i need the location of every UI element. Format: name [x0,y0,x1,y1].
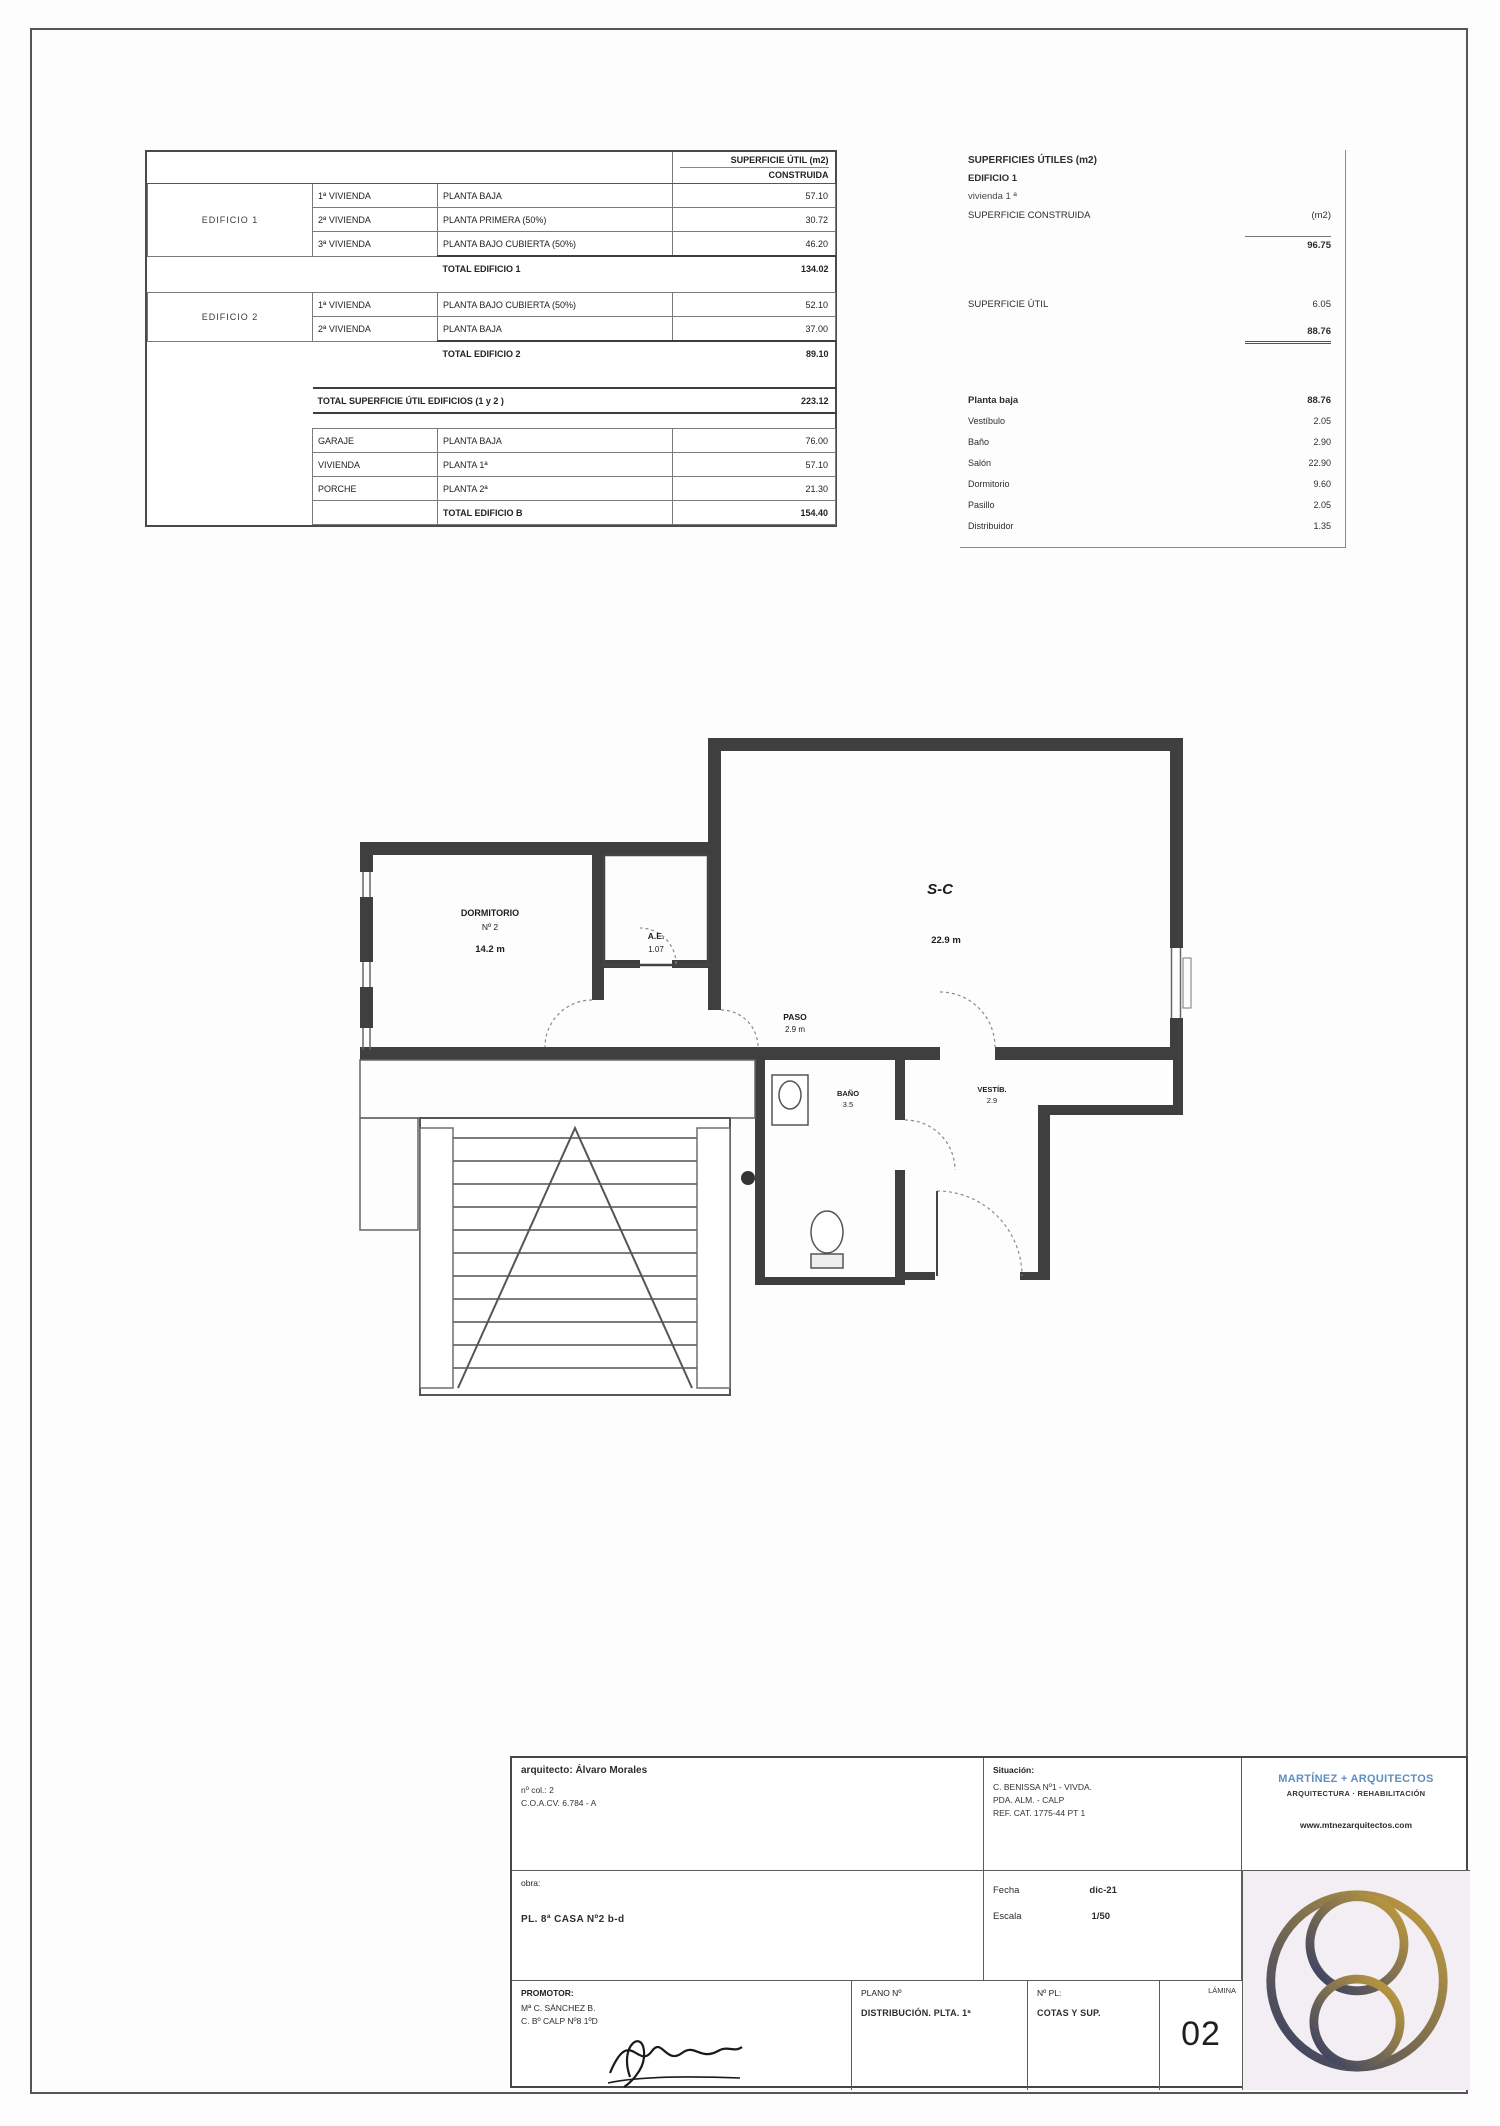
constructed-value: 96.75 [1245,236,1331,255]
room-row: Baño 2.90 [968,432,1331,453]
window-lines [363,872,1181,1050]
unit-cell: 3ª VIVIENDA [313,232,438,257]
useful-total: 88.76 [1245,323,1331,344]
room-row: Dormitorio 9.60 [968,474,1331,495]
building1-label: EDIFICIO 1 [148,184,313,257]
room-areas-list: Planta baja 88.76 Vestíbulo 2.05 Baño 2.… [968,390,1331,537]
room-label: Pasillo [968,495,995,516]
drawing-title-value: DISTRIBUCIÓN. PLTA. 1ª [861,2008,1018,2018]
total-row: TOTAL EDIFICIO B 154.40 [148,501,836,525]
building2-label: EDIFICIO 2 [148,293,313,342]
closet-area-label: 1.07 [648,945,664,954]
desc-cell: PLANTA BAJO CUBIERTA (50%) [438,293,673,317]
window-sill [1183,958,1191,1008]
grand-total-row: TOTAL SUPERFICIE ÚTIL EDIFICIOS (1 y 2 )… [148,388,836,413]
unit-cell: 1ª VIVIENDA [313,184,438,208]
room-row: Salón 22.90 [968,453,1331,474]
drain-marker [741,1171,755,1185]
project-cell: obra: PL. 8ª CASA Nº2 b-d [512,1870,984,1980]
total-row: TOTAL EDIFICIO 1 134.02 [148,256,836,280]
firm-logo [1259,1883,1455,2079]
useful-row: SUPERFICIE ÚTIL 6.05 [968,295,1331,315]
desc-cell: PLANTA BAJO CUBIERTA (50%) [438,232,673,257]
living-room-label: S-C [927,881,954,898]
hall-area-label: 2.9 [987,1096,997,1105]
room-value: 2.90 [1313,432,1331,453]
architect-line2: nº col.: 2 [521,1784,974,1797]
useful-label: SUPERFICIE ÚTIL [968,295,1048,315]
room-label: Dormitorio [968,474,1010,495]
bath-label: BAÑO [837,1089,859,1098]
table-row: PORCHE PLANTA 2ª 21.30 [148,477,836,501]
drawing-title-label: PLANO Nº [861,1988,1018,1998]
sheet-number-cell: LÁMINA 02 [1160,1980,1242,2090]
summary-unit: vivienda 1 ª [968,188,1331,206]
location-label: Situación: [993,1765,1232,1775]
summary-building: EDIFICIO 1 [968,170,1331,188]
unit-cell: 1ª VIVIENDA [313,293,438,317]
table-row: VIVIENDA PLANTA 1ª 57.10 [148,453,836,477]
bath-area-label: 3.5 [843,1100,853,1109]
project-label: obra: [521,1878,974,1888]
date-label: Fecha [993,1878,1019,1904]
unit-cell: 2ª VIVIENDA [313,317,438,342]
room-value: 9.60 [1313,474,1331,495]
architect-line3: C.O.A.CV. 6.784 - A [521,1797,974,1810]
desc-cell: PLANTA 1ª [438,453,673,477]
location-line3: REF. CAT. 1775-44 PT 1 [993,1807,1232,1820]
architect-name: arquitecto: Álvaro Morales [521,1765,974,1776]
scale-row: Escala 1/50 [993,1904,1232,1930]
table-row: EDIFICIO 2 1ª VIVIENDA PLANTA BAJO CUBIE… [148,293,836,317]
room-label: Vestíbulo [968,411,1005,432]
unit-cell: VIVIENDA [313,453,438,477]
promoter-label: PROMOTOR: [521,1988,842,1998]
firm-tagline: ARQUITECTURA · REHABILITACIÓN [1251,1789,1461,1798]
signature [600,2013,750,2093]
date-value: dic-21 [1089,1878,1116,1904]
drawing-detail-label: Nº PL: [1037,1988,1150,1998]
room-area-label: 14.2 m [475,944,505,955]
location-line2: PDA. ALM. - CALP [993,1794,1232,1807]
scale-label: Escala [993,1904,1022,1930]
surface-summary-block: SUPERFICIES ÚTILES (m2) EDIFICIO 1 vivie… [960,150,1346,548]
value-cell: 76.00 [673,429,836,453]
value-cell: 37.00 [673,317,836,342]
architect-cell: arquitecto: Álvaro Morales nº col.: 2 C.… [512,1758,984,1870]
desc-cell: PLANTA 2ª [438,477,673,501]
total-label: TOTAL EDIFICIO B [438,501,673,525]
value-cell: 52.10 [673,293,836,317]
location-line1: C. BENISSA Nº1 - VIVDA. [993,1781,1232,1794]
table-row: GARAJE PLANTA BAJA 76.00 [148,429,836,453]
drawing-detail-cell: Nº PL: COTAS Y SUP. [1028,1980,1160,2090]
unit-cell: GARAJE [313,429,438,453]
sink-basin [779,1081,801,1109]
promoter-cell: PROMOTOR: Mª C. SÁNCHEZ B. C. Bº CALP Nº… [512,1980,852,2090]
living-room-area-label: 22.9 m [931,935,961,946]
total-value: 154.40 [673,501,836,525]
staircase [420,1118,730,1395]
desc-cell: PLANTA BAJA [438,317,673,342]
room-label: Distribuidor [968,516,1014,537]
desc-cell: PLANTA BAJA [438,429,673,453]
logo-cell [1242,1870,1470,2090]
room-value: 1.35 [1313,516,1331,537]
grand-total-value: 223.12 [673,388,836,413]
surface-area-table: SUPERFICIE ÚTIL (m2) CONSTRUIDA EDIFICIO… [145,150,837,527]
sheet-number: 02 [1160,2015,1242,2054]
header-line1: SUPERFICIE ÚTIL (m2) [680,152,829,168]
room-label: Baño [968,432,989,453]
date-row: Fecha dic-21 [993,1878,1232,1904]
project-line: PL. 8ª CASA Nº2 b-d [521,1914,974,1925]
room-value: 2.05 [1313,495,1331,516]
passage-area-label: 2.9 m [785,1025,805,1034]
firm-cell: MARTÍNEZ + ARQUITECTOS ARQUITECTURA · RE… [1242,1758,1470,1870]
constructed-label: SUPERFICIE CONSTRUIDA [968,206,1090,226]
room-row: Pasillo 2.05 [968,495,1331,516]
total-value: 134.02 [673,256,836,280]
value-cell: 57.10 [673,184,836,208]
grand-total-label: TOTAL SUPERFICIE ÚTIL EDIFICIOS (1 y 2 ) [313,388,673,413]
closet-label: A.E. [648,931,665,941]
rooms-header-row: Planta baja 88.76 [968,390,1331,411]
toilet-tank [811,1254,843,1268]
header-line2: CONSTRUIDA [680,168,829,183]
unit-cell: 2ª VIVIENDA [313,208,438,232]
floor-plan-drawing: DORMITORIO Nº 2 14.2 m A.E. 1.07 PASO 2.… [340,720,1240,1420]
total-value: 89.10 [673,341,836,365]
title-block: arquitecto: Álvaro Morales nº col.: 2 C.… [510,1756,1468,2088]
drawing-title-cell: PLANO Nº DISTRIBUCIÓN. PLTA. 1ª [852,1980,1028,2090]
passage-label: PASO [783,1012,807,1022]
table-row: EDIFICIO 1 1ª VIVIENDA PLANTA BAJA 57.10 [148,184,836,208]
room-row: Distribuidor 1.35 [968,516,1331,537]
room-number-label: Nº 2 [482,922,499,932]
constructed-unit: (m2) [1311,206,1331,226]
rooms-header-value: 88.76 [1307,390,1331,411]
meta-cell: Fecha dic-21 Escala 1/50 [984,1870,1242,1980]
table-header-row: SUPERFICIE ÚTIL (m2) CONSTRUIDA [148,152,836,184]
table-header-cell: SUPERFICIE ÚTIL (m2) CONSTRUIDA [673,152,836,184]
toilet-bowl [811,1211,843,1253]
firm-name: MARTÍNEZ + ARQUITECTOS [1251,1773,1461,1785]
value-cell: 46.20 [673,232,836,257]
unit-cell: PORCHE [313,477,438,501]
plan-labels: DORMITORIO Nº 2 14.2 m A.E. 1.07 PASO 2.… [461,881,1007,1109]
rooms-header-label: Planta baja [968,390,1018,411]
total-label: TOTAL EDIFICIO 1 [438,256,673,280]
value-cell: 30.72 [673,208,836,232]
room-value: 2.05 [1313,411,1331,432]
room-row: Vestíbulo 2.05 [968,411,1331,432]
desc-cell: PLANTA BAJA [438,184,673,208]
location-cell: Situación: C. BENISSA Nº1 - VIVDA. PDA. … [984,1758,1242,1870]
room-name-label: DORMITORIO [461,908,519,918]
hall-label: VESTÍB. [977,1085,1006,1094]
constructed-row: SUPERFICIE CONSTRUIDA (m2) [968,206,1331,226]
firm-website: www.mtnezarquitectos.com [1251,1820,1461,1830]
summary-title: SUPERFICIES ÚTILES (m2) [968,152,1331,170]
drawing-detail-value: COTAS Y SUP. [1037,2008,1150,2018]
total-row: TOTAL EDIFICIO 2 89.10 [148,341,836,365]
plan-sheet-page: SUPERFICIE ÚTIL (m2) CONSTRUIDA EDIFICIO… [0,0,1500,2126]
total-label: TOTAL EDIFICIO 2 [438,341,673,365]
value-cell: 57.10 [673,453,836,477]
desc-cell: PLANTA PRIMERA (50%) [438,208,673,232]
sheet-number-label: LÁMINA [1208,1986,1236,1995]
value-cell: 21.30 [673,477,836,501]
useful-value: 6.05 [1313,295,1332,315]
scale-value: 1/50 [1092,1904,1111,1930]
room-label: Salón [968,453,991,474]
room-value: 22.90 [1308,453,1331,474]
